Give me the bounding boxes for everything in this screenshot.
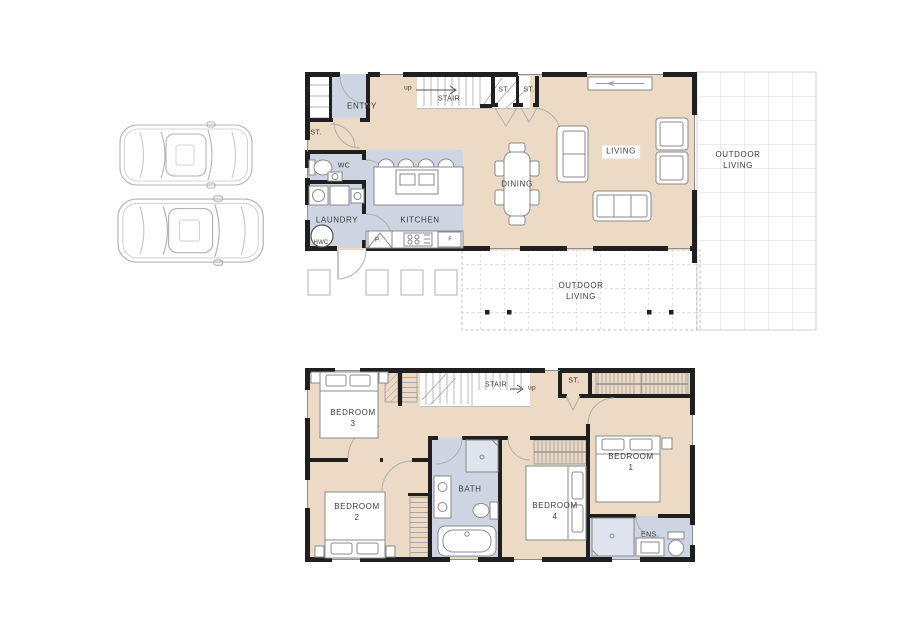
kitchen-fixtures [366, 159, 463, 248]
label-ensuite: ENS. [641, 530, 659, 539]
label-storage-1: ST. [498, 85, 509, 94]
label-storage-hall: ST. [310, 128, 321, 137]
label-storage-2: ST. [523, 85, 534, 94]
car-icon [118, 196, 263, 265]
label-bedroom-3: BEDROOM 3 [330, 408, 376, 430]
car-icon [120, 122, 252, 188]
label-stair-upper: STAIR [485, 380, 507, 389]
label-dining: DINING [501, 180, 533, 191]
stair-upper [420, 370, 530, 407]
label-bedroom-2: BEDROOM 2 [334, 502, 380, 524]
label-stair-ground: STAIR [438, 94, 460, 103]
stair-ground [416, 76, 530, 109]
label-wc: WC [338, 161, 350, 170]
label-bedroom-4: BEDROOM 4 [532, 501, 578, 523]
floor-plan-page: ENTRY ST. WC LAUNDRY HWC KITCHEN P. F ST… [0, 0, 900, 637]
linen-closet [307, 74, 331, 118]
label-living: LIVING [602, 146, 640, 159]
label-kitchen: KITCHEN [400, 216, 439, 227]
pavers [308, 270, 457, 295]
label-fridge: F [448, 236, 451, 243]
label-laundry: LAUNDRY [316, 216, 358, 227]
label-outdoor-living-bottom: OUTDOOR LIVING [558, 281, 603, 303]
label-up-upper: up [528, 385, 536, 394]
label-bedroom-1: BEDROOM 1 [608, 452, 654, 474]
label-up-ground: up [404, 85, 412, 94]
label-bath: BATH [458, 485, 481, 496]
outdoor-living-right-area [697, 72, 816, 330]
label-storage-upper: ST. [568, 376, 579, 385]
label-outdoor-living-right: OUTDOOR LIVING [715, 150, 760, 172]
label-hwc: HWC [314, 239, 329, 247]
label-entry: ENTRY [347, 102, 377, 113]
label-pantry: P. [375, 237, 381, 246]
